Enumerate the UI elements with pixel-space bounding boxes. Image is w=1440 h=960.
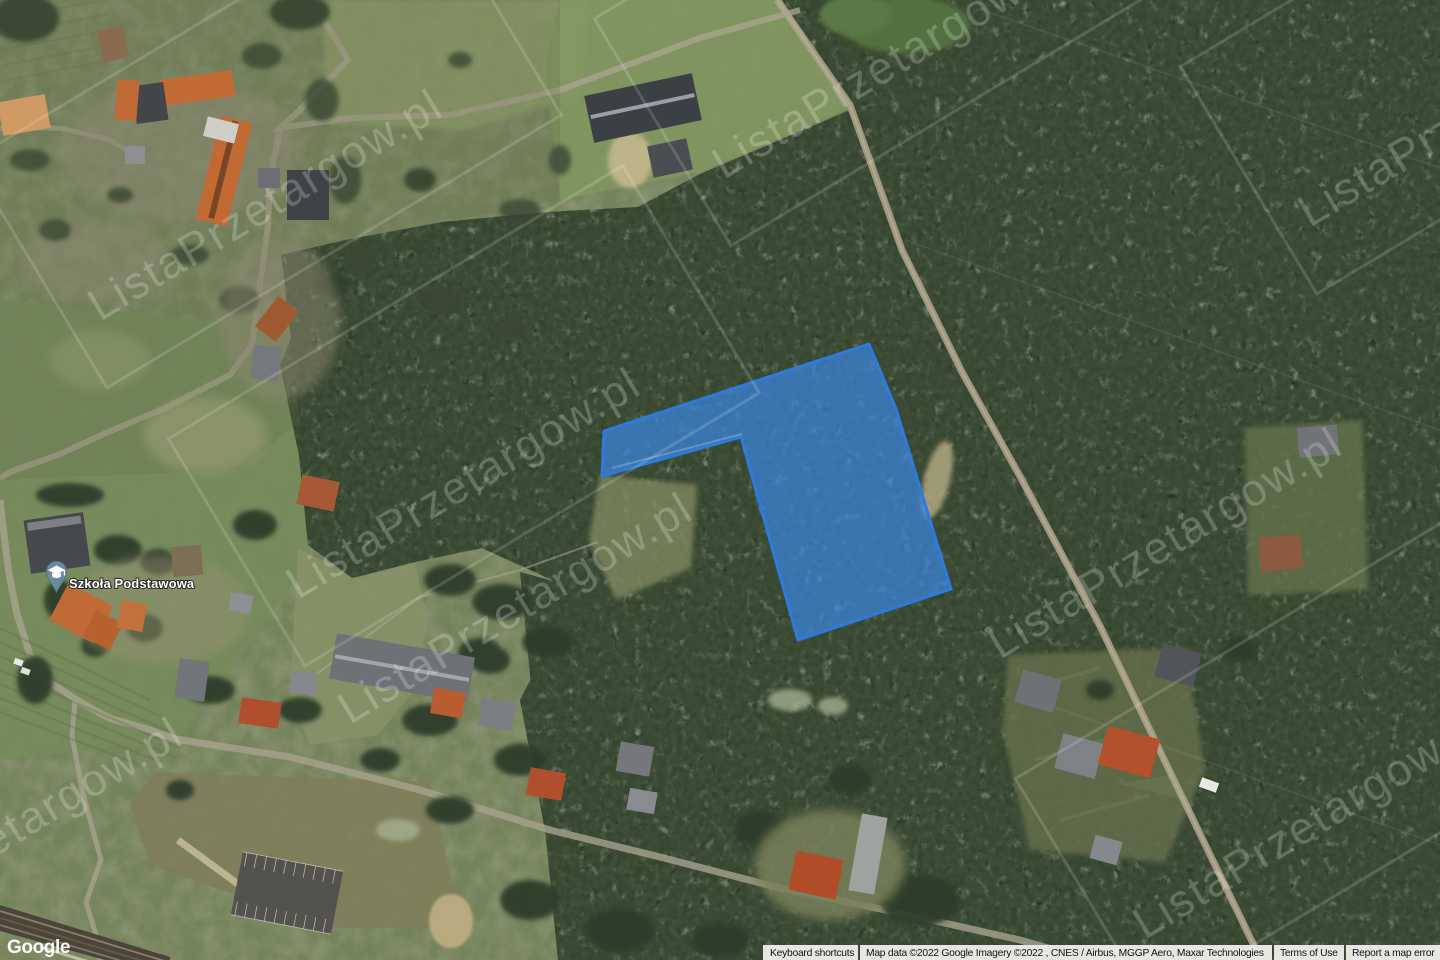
svg-text:Report a map error: Report a map error (1352, 948, 1435, 959)
svg-text:Map data ©2022 Google Imagery: Map data ©2022 Google Imagery ©2022 , CN… (866, 948, 1264, 959)
svg-text:Szkoła Podstawowa: Szkoła Podstawowa (69, 576, 195, 591)
svg-text:Terms of Use: Terms of Use (1280, 948, 1338, 959)
svg-text:Google: Google (7, 937, 70, 958)
svg-text:Keyboard shortcuts: Keyboard shortcuts (770, 948, 854, 959)
